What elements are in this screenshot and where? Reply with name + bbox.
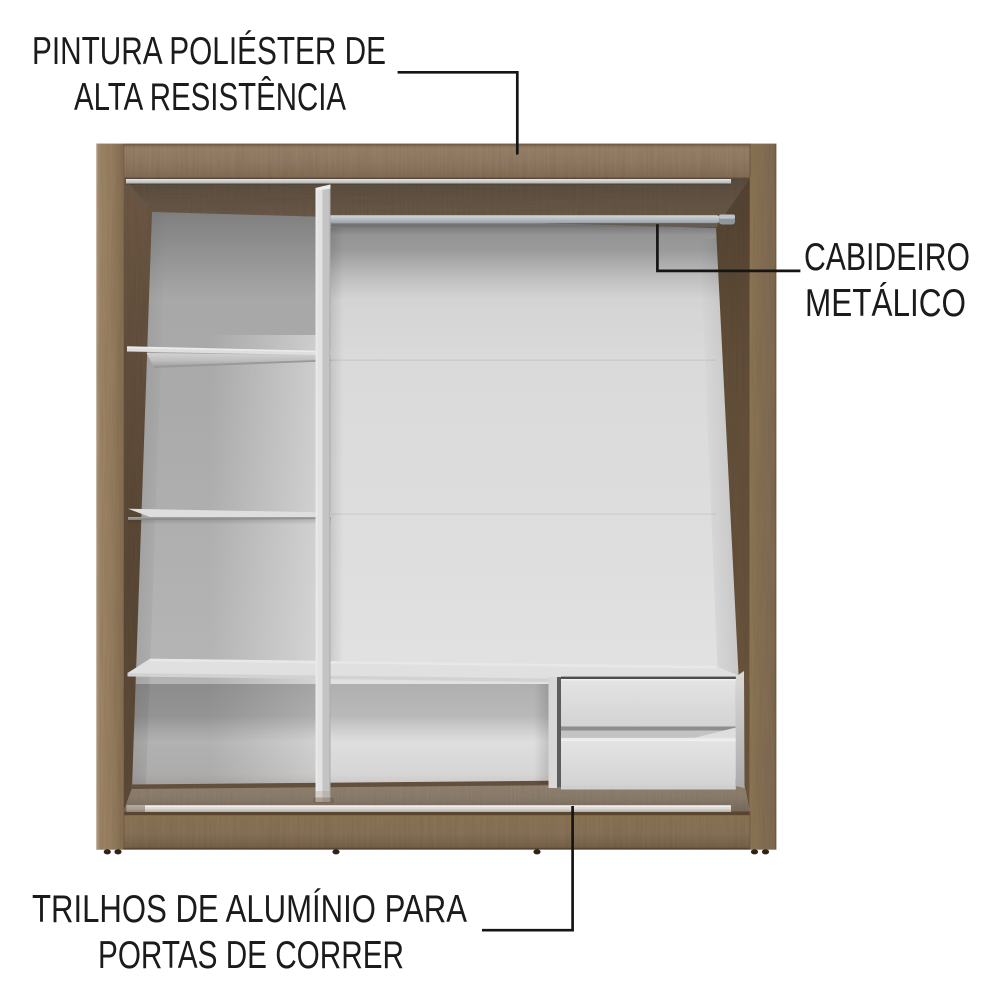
- svg-text:ALTA RESISTÊNCIA: ALTA RESISTÊNCIA: [74, 76, 346, 119]
- svg-text:METÁLICO: METÁLICO: [805, 282, 966, 325]
- svg-text:CABIDEIRO: CABIDEIRO: [804, 236, 970, 279]
- svg-text:PINTURA POLIÉSTER DE: PINTURA POLIÉSTER DE: [32, 30, 386, 73]
- svg-text:TRILHOS DE ALUMÍNIO PARA: TRILHOS DE ALUMÍNIO PARA: [32, 888, 467, 931]
- svg-text:PORTAS DE CORRER: PORTAS DE CORRER: [98, 934, 404, 977]
